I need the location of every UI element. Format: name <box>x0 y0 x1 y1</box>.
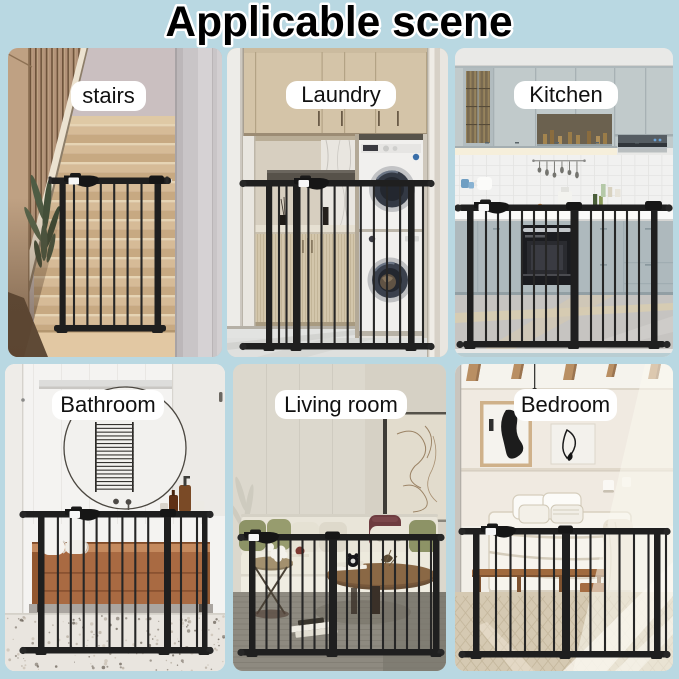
svg-text:Applicable scene: Applicable scene <box>165 0 512 46</box>
